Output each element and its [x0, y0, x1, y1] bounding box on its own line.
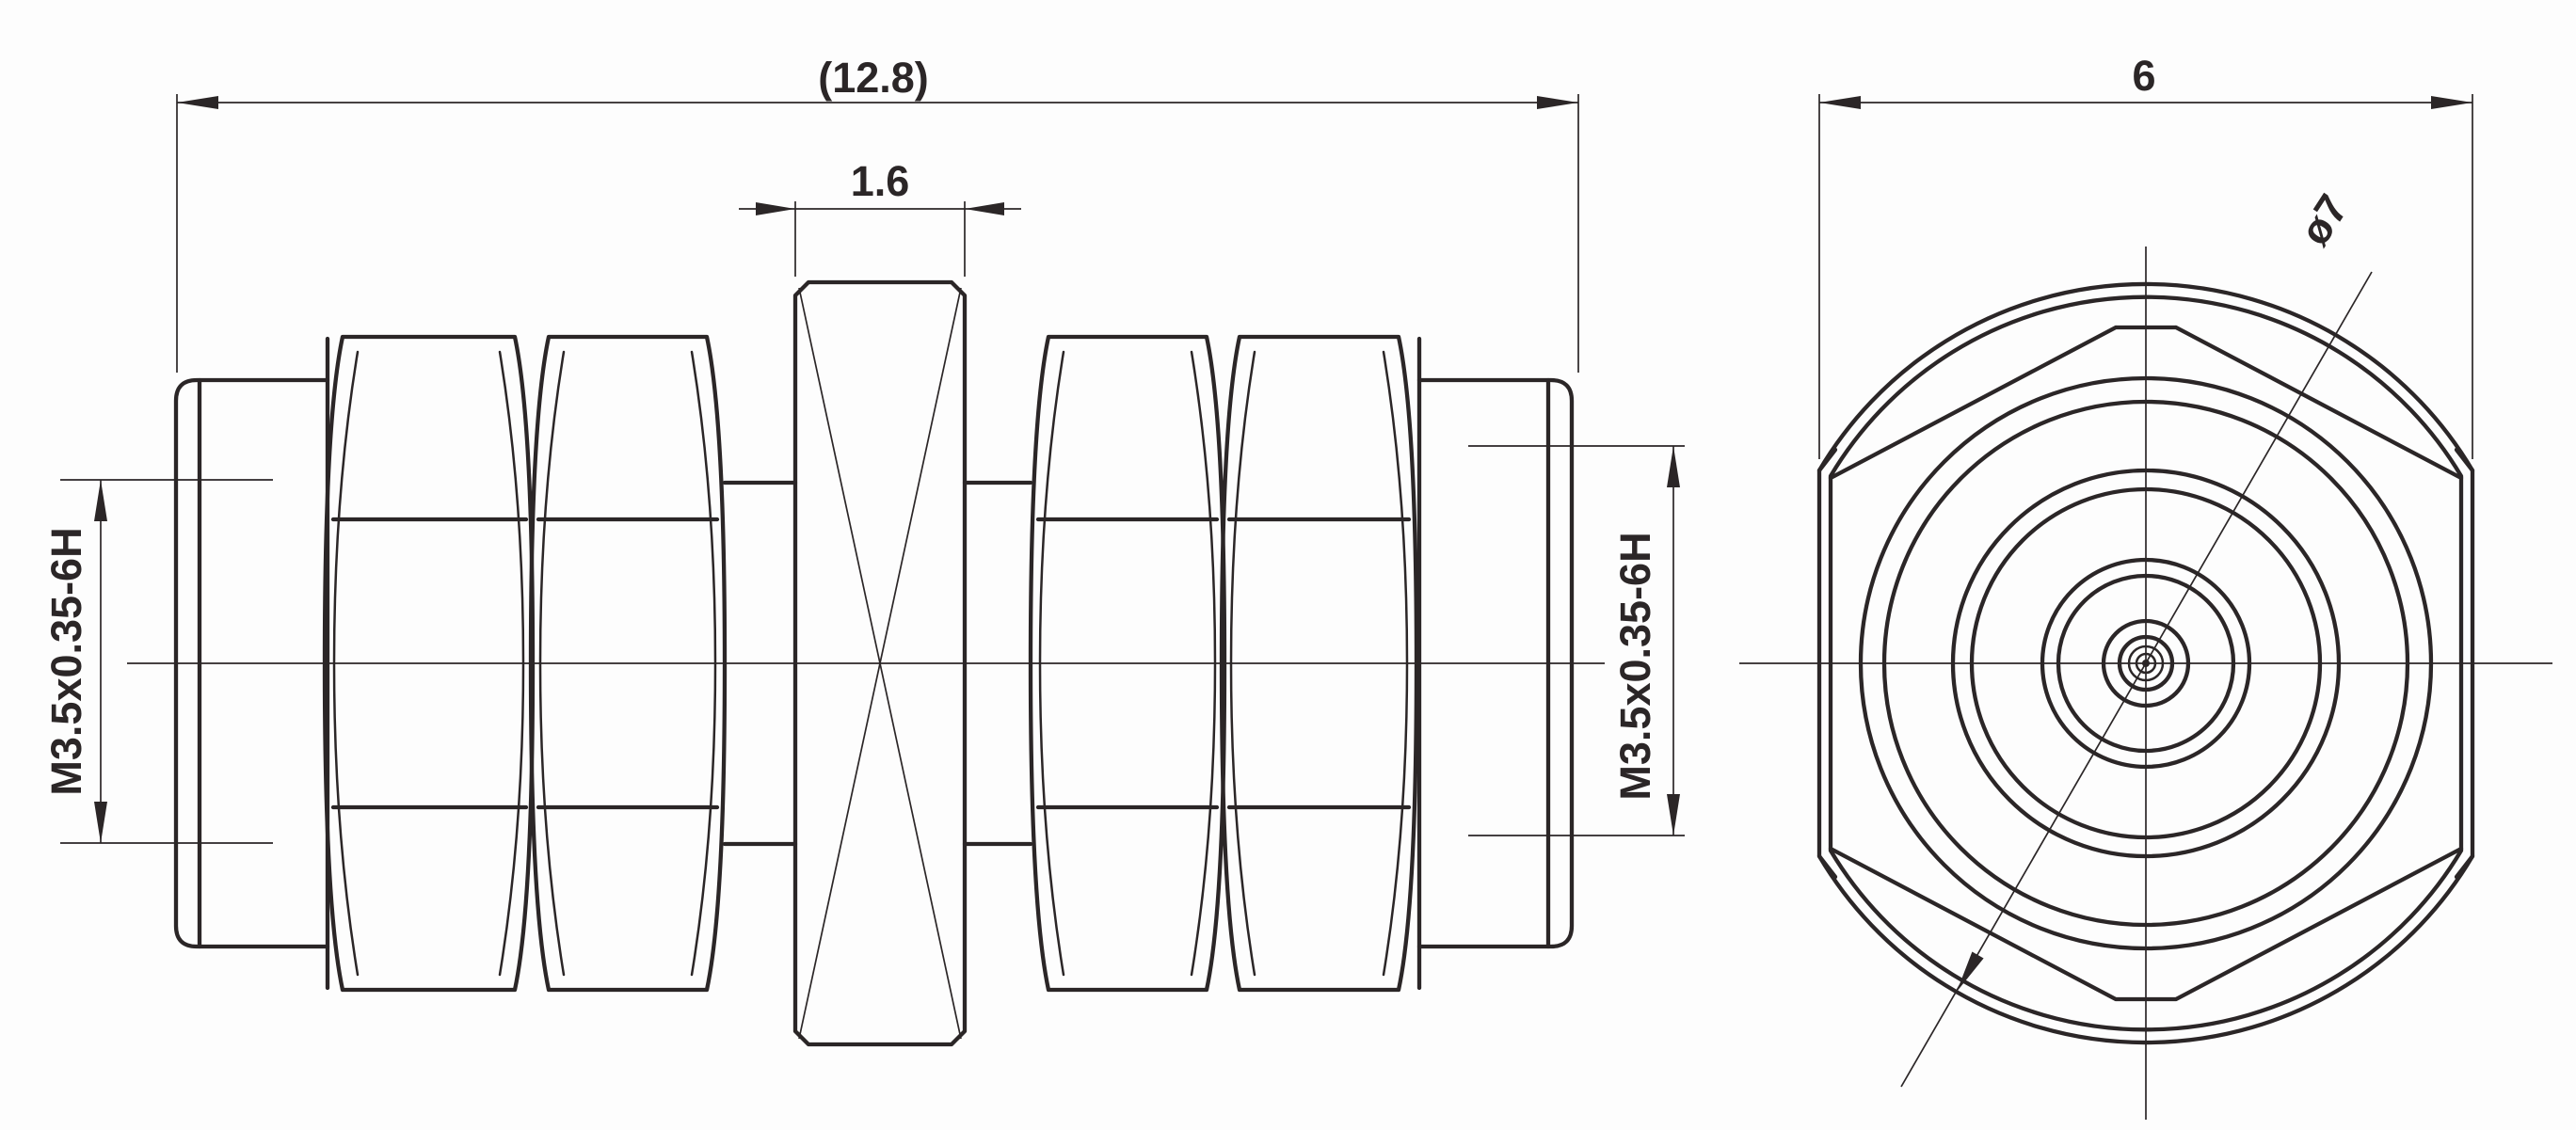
- arrowhead-up: [1667, 446, 1680, 487]
- thread-dimension-left: M3.5x0.35-6H: [42, 480, 273, 843]
- arrowhead-down: [1667, 794, 1680, 836]
- thread-dimension-right: M3.5x0.35-6H: [1468, 446, 1685, 836]
- arrowhead-right: [1537, 96, 1578, 109]
- arrowhead-right: [2431, 96, 2472, 109]
- technical-drawing: (12.8) 1.6 M3.5x0.35-6H M3.5x0.35-6H: [0, 0, 2576, 1130]
- across-flats-label: 6: [2132, 52, 2155, 100]
- bulkhead-thickness-dimension: 1.6: [739, 157, 1021, 277]
- arrowhead-down: [94, 802, 107, 843]
- overall-length-dimension: (12.8): [177, 54, 1578, 373]
- arrowhead-left: [756, 202, 795, 215]
- arrowhead-right: [965, 202, 1004, 215]
- flange-diameter-label: ø7: [2290, 186, 2357, 254]
- thread-right-label: M3.5x0.35-6H: [1611, 532, 1659, 800]
- end-view: 6 ø7: [1739, 52, 2552, 1120]
- arrowhead-up: [94, 480, 107, 521]
- bulkhead-thickness-label: 1.6: [851, 157, 910, 205]
- drawing-canvas: (12.8) 1.6 M3.5x0.35-6H M3.5x0.35-6H: [0, 0, 2576, 1130]
- flange-diameter-dimension: ø7: [1901, 186, 2372, 1087]
- arrowhead-left: [1819, 96, 1861, 109]
- thread-left-label: M3.5x0.35-6H: [42, 527, 90, 795]
- side-view: (12.8) 1.6 M3.5x0.35-6H M3.5x0.35-6H: [42, 54, 1685, 1044]
- overall-length-label: (12.8): [818, 54, 929, 102]
- arrowhead-left: [177, 96, 218, 109]
